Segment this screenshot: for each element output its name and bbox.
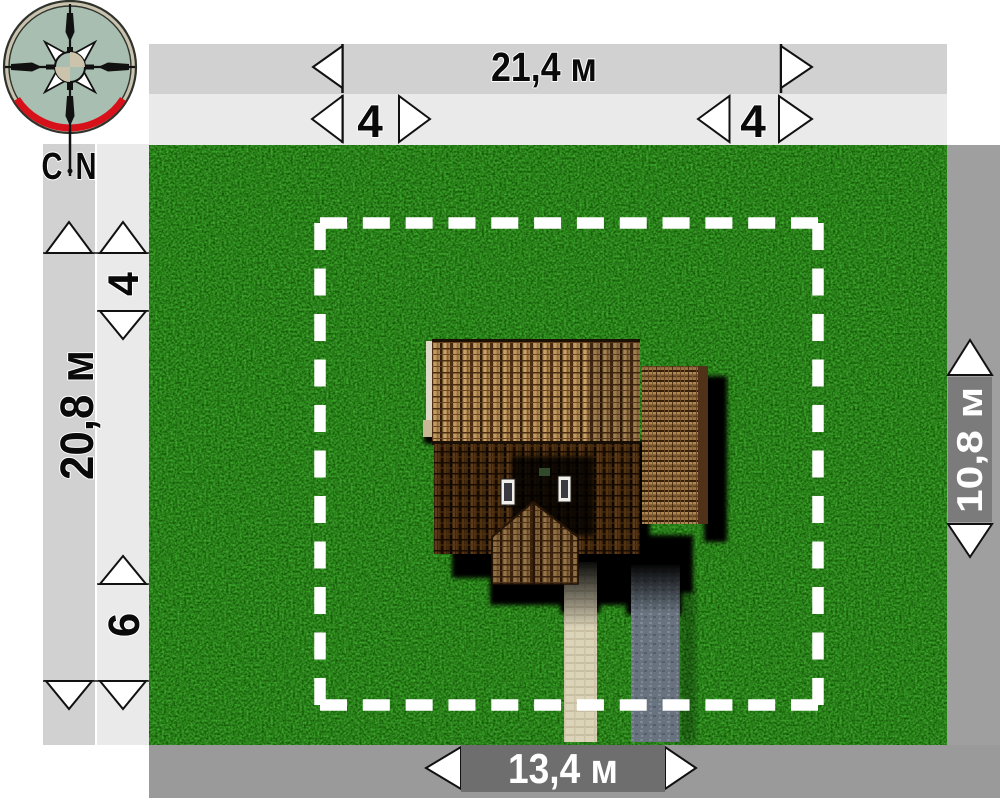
svg-text:С: С <box>42 146 63 188</box>
svg-text:N: N <box>76 146 97 188</box>
svg-text:4: 4 <box>357 95 383 147</box>
svg-text:10,8 м: 10,8 м <box>949 387 990 513</box>
svg-text:4: 4 <box>740 95 766 147</box>
svg-text:21,4 м: 21,4 м <box>491 44 597 90</box>
svg-text:4: 4 <box>100 272 148 296</box>
svg-text:13,4 м: 13,4 м <box>508 745 618 792</box>
svg-text:20,8 м: 20,8 м <box>50 350 103 480</box>
svg-text:6: 6 <box>100 613 149 637</box>
